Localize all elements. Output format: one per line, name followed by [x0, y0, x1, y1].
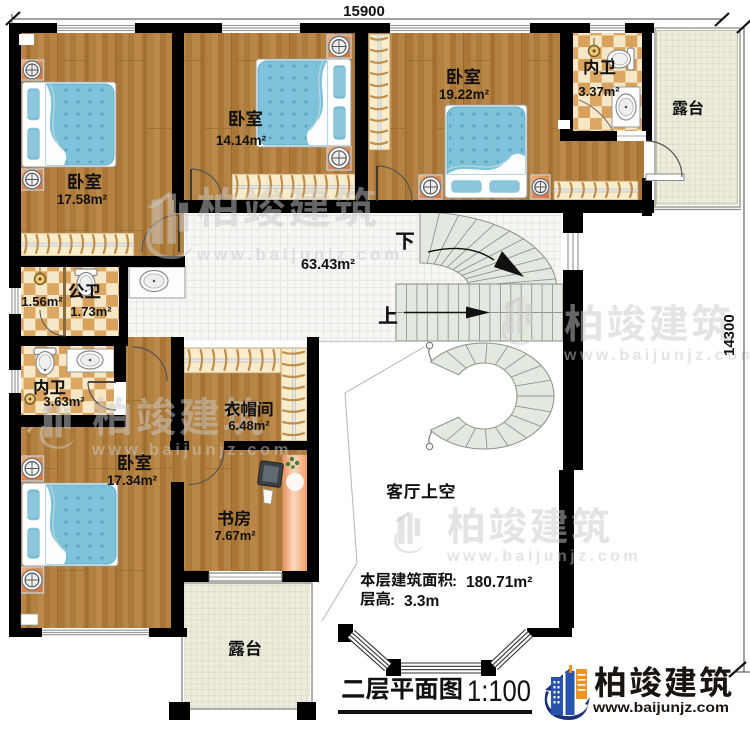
svg-text:3.37m²: 3.37m²	[578, 84, 620, 99]
svg-text:7.67m²: 7.67m²	[214, 528, 256, 543]
svg-text:www.baijunjz.com: www.baijunjz.com	[592, 700, 729, 715]
svg-text:3.63m²: 3.63m²	[43, 394, 85, 409]
svg-text::: :	[452, 573, 457, 590]
svg-text:www.baijunjz.com: www.baijunjz.com	[196, 245, 403, 264]
svg-text:6.48m²: 6.48m²	[228, 418, 270, 433]
svg-text:19.22m²: 19.22m²	[439, 87, 490, 102]
svg-text::: :	[390, 592, 395, 609]
svg-text:63.43m²: 63.43m²	[301, 257, 355, 273]
svg-text:14300: 14300	[721, 314, 738, 356]
svg-text:17.34m²: 17.34m²	[107, 473, 158, 488]
svg-text:3.3m: 3.3m	[404, 593, 439, 610]
svg-text:17.58m²: 17.58m²	[57, 192, 108, 207]
svg-text:1:100: 1:100	[467, 675, 531, 708]
svg-text:14.14m²: 14.14m²	[216, 133, 267, 148]
svg-text:1.56m²: 1.56m²	[21, 294, 63, 309]
svg-text:180.71m²: 180.71m²	[466, 574, 532, 591]
svg-text:15900: 15900	[343, 3, 385, 20]
svg-text:www.baijunjz.com: www.baijunjz.com	[446, 548, 641, 565]
svg-text:1.73m²: 1.73m²	[70, 304, 112, 319]
